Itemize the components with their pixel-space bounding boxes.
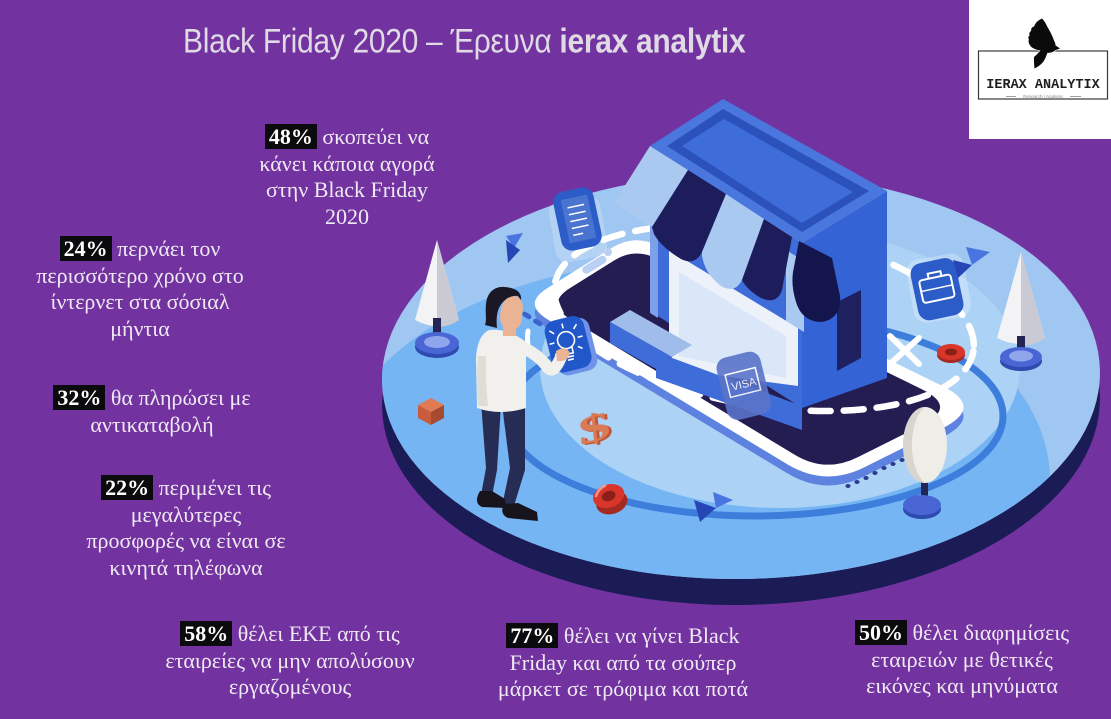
svg-text:$: $ bbox=[576, 402, 612, 454]
